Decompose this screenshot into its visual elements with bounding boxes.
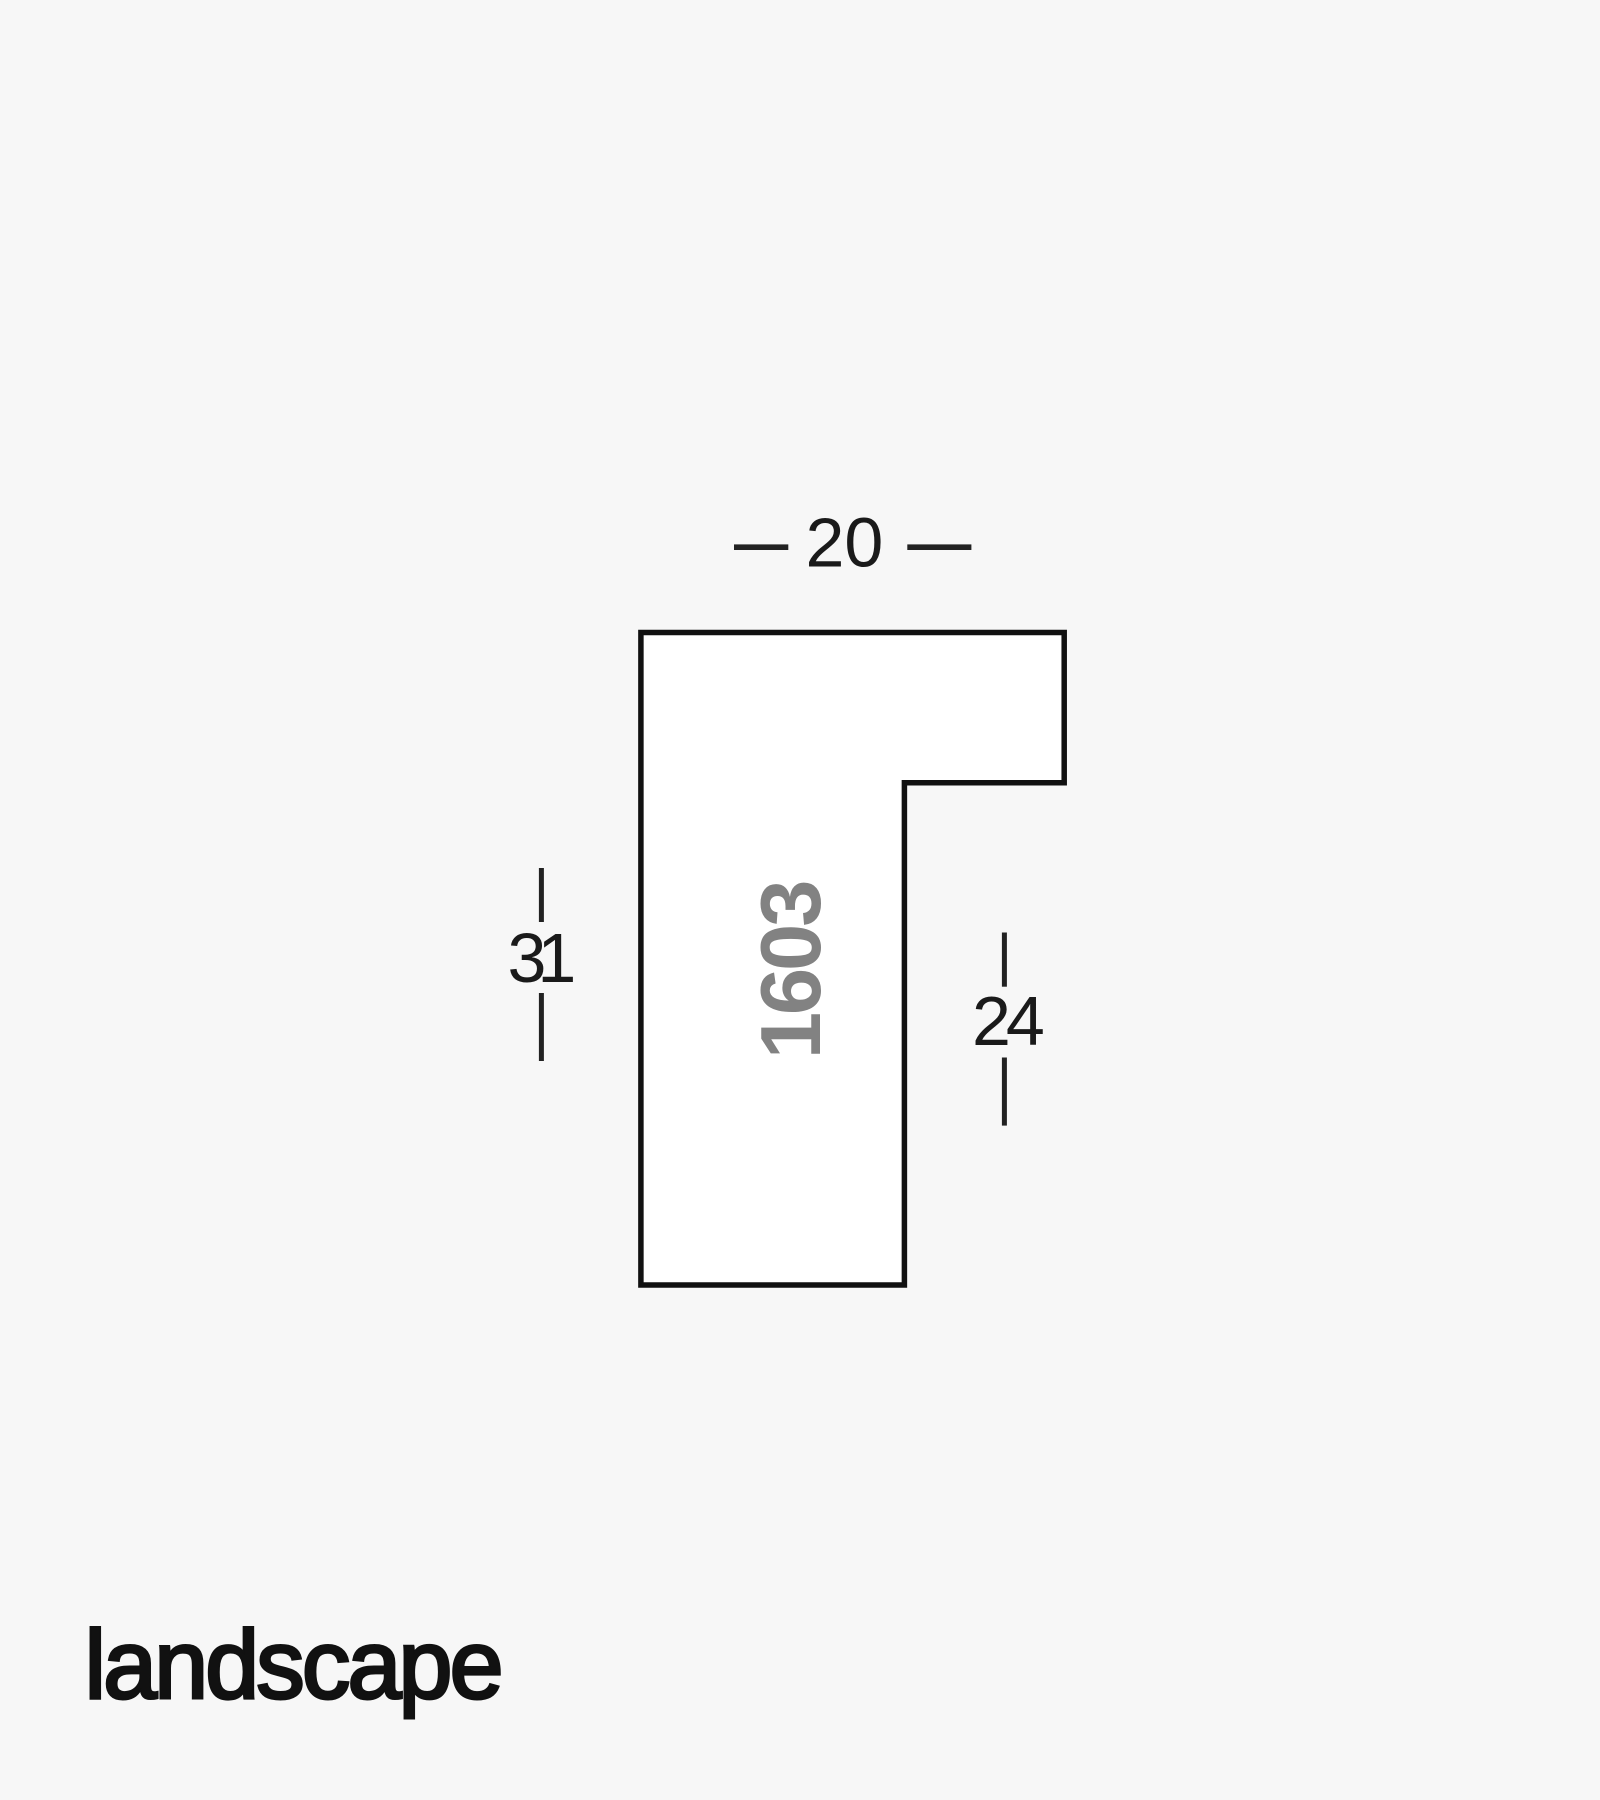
- svg-text:20: 20: [805, 503, 883, 581]
- svg-text:24: 24: [972, 982, 1043, 1060]
- svg-text:landscape: landscape: [85, 1610, 501, 1719]
- svg-text:1603: 1603: [744, 882, 839, 1059]
- svg-text:31: 31: [507, 919, 573, 997]
